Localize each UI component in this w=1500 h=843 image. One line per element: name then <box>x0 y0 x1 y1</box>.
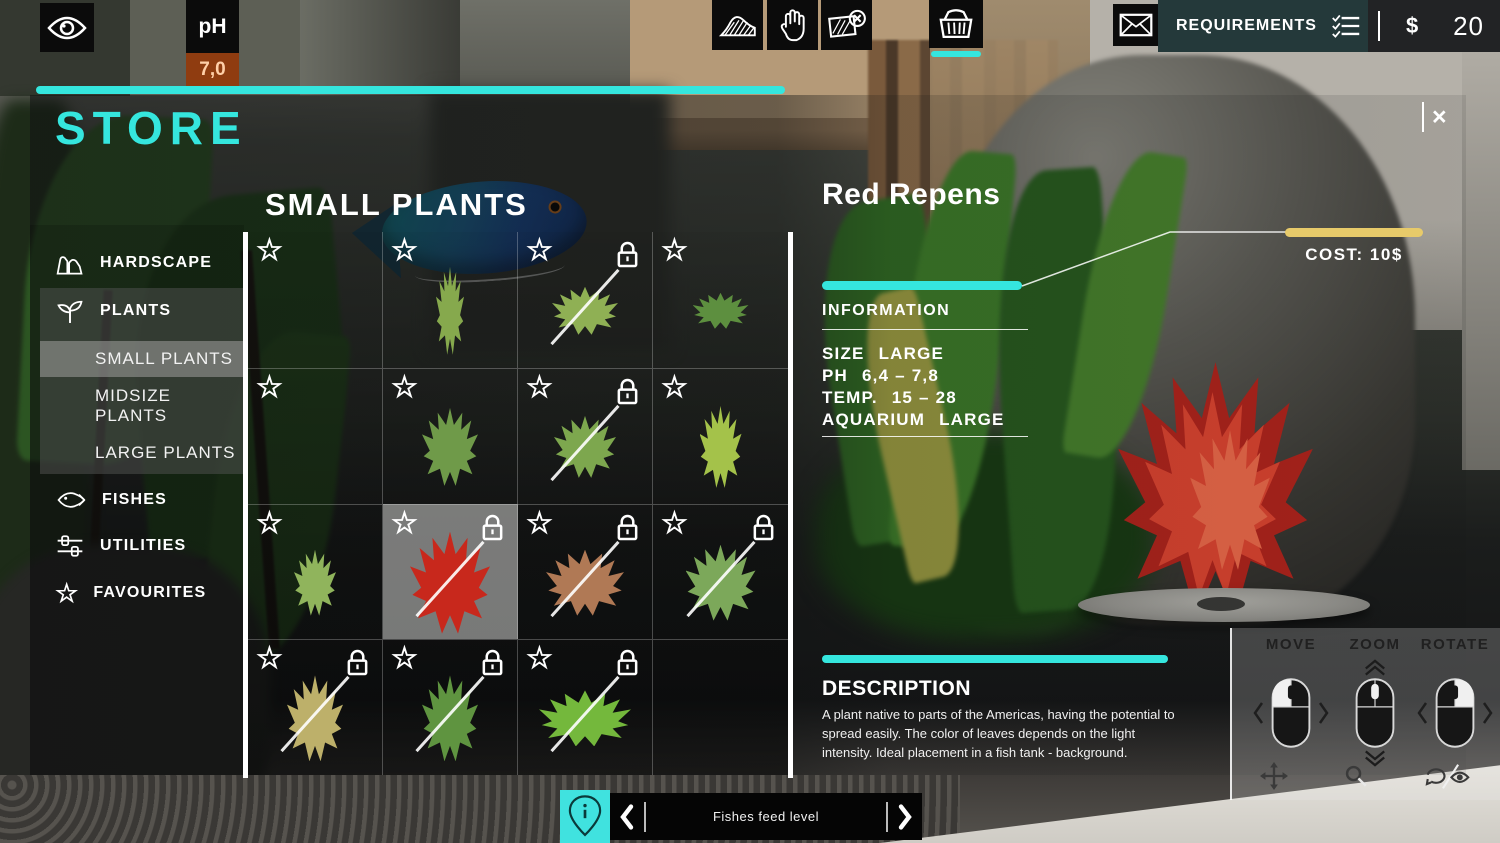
rotate-control: ROTATE <box>1412 636 1498 767</box>
info-label: SIZE <box>822 343 865 364</box>
plant-cell <box>653 639 788 775</box>
info-row: SIZELARGE <box>822 343 1005 364</box>
chevron-left-icon <box>1252 701 1264 725</box>
plant-cell[interactable]: ☆ <box>653 504 788 640</box>
item-accent-bar <box>822 281 1022 290</box>
info-value: LARGE <box>879 343 945 364</box>
close-icon: × <box>1432 105 1447 130</box>
plant-thumbnail <box>294 550 336 616</box>
sliders-icon <box>55 533 85 559</box>
plant-cell[interactable]: ☆ <box>248 368 383 504</box>
plant-cell[interactable]: ☆ <box>383 368 518 504</box>
divider <box>1422 102 1424 132</box>
currency-symbol: $ <box>1406 13 1418 39</box>
rotate-eye-icon <box>1424 763 1472 790</box>
info-row: TEMP.15 – 28 <box>822 387 1005 408</box>
plant-cell[interactable]: ☆ <box>383 639 518 775</box>
star-icon: ☆ <box>55 580 78 606</box>
terrain-tool-button[interactable] <box>712 0 763 50</box>
plant-grid: ☆☆☆☆☆☆☆☆☆☆☆☆☆☆☆ <box>248 232 788 775</box>
cost-bar <box>1285 228 1423 237</box>
sidebar-item-hardscape[interactable]: HARDSCAPE <box>55 247 212 279</box>
camera-controls-panel: MOVE ZOOM ROTATE <box>1230 628 1500 800</box>
plant-thumbnail <box>436 267 464 355</box>
info-label: AQUARIUM <box>822 409 925 430</box>
description-title: DESCRIPTION <box>822 677 971 701</box>
plant-thumbnail <box>686 545 756 621</box>
mail-icon <box>1119 12 1153 38</box>
move-control: MOVE <box>1248 636 1334 767</box>
category-title: SMALL PLANTS <box>265 187 528 223</box>
top-progress-bar <box>36 86 785 94</box>
status-label: Fishes feed level <box>646 809 886 824</box>
rotate-label: ROTATE <box>1421 636 1489 653</box>
divider <box>822 436 1028 437</box>
hand-tool-button[interactable] <box>767 0 818 50</box>
info-label: PH <box>822 365 848 386</box>
grid-scrollbar-right[interactable] <box>788 232 793 778</box>
chevron-left-icon <box>1416 701 1428 725</box>
visibility-button[interactable] <box>40 3 94 52</box>
move-label: MOVE <box>1266 636 1316 653</box>
favourite-star-icon[interactable]: ☆ <box>391 371 418 404</box>
info-row: AQUARIUMLARGE <box>822 409 1005 430</box>
favourite-star-icon[interactable]: ☆ <box>526 234 553 267</box>
mouse-right-button-icon <box>1432 675 1478 751</box>
lock-icon <box>480 513 505 542</box>
money-display: $ 20 <box>1368 0 1500 52</box>
checklist-icon <box>1331 13 1361 39</box>
lock-icon <box>480 648 505 677</box>
previous-status-button[interactable] <box>610 802 644 832</box>
info-row: PH6,4 – 7,8 <box>822 365 1005 386</box>
sidebar-item-large-plants[interactable]: LARGE PLANTS <box>40 435 244 471</box>
fish-icon <box>55 488 87 512</box>
cost-text: COST: 10$ <box>1282 245 1426 265</box>
chevron-right-icon <box>1482 701 1494 725</box>
sidebar-item-favourites[interactable]: ☆ FAVOURITES <box>55 577 206 609</box>
status-cycle-bar: Fishes feed level <box>610 793 922 840</box>
terrain-icon <box>719 11 757 39</box>
favourite-star-icon[interactable]: ☆ <box>661 371 688 404</box>
hand-icon <box>777 7 809 43</box>
info-label: TEMP. <box>822 387 878 408</box>
favourite-star-icon[interactable]: ☆ <box>256 234 283 267</box>
ph-value: 7,0 <box>186 53 239 87</box>
requirements-button[interactable]: REQUIREMENTS <box>1158 0 1368 52</box>
store-basket-button[interactable] <box>929 0 983 48</box>
favourite-star-icon[interactable]: ☆ <box>391 642 418 675</box>
store-title: STORE <box>55 101 248 155</box>
requirements-label: REQUIREMENTS <box>1176 17 1317 35</box>
divider <box>822 329 1028 330</box>
item-name: Red Repens <box>822 178 1000 212</box>
info-value: 6,4 – 7,8 <box>862 365 939 386</box>
information-rows: SIZELARGEPH6,4 – 7,8TEMP.15 – 28AQUARIUM… <box>822 343 1005 430</box>
favourite-star-icon[interactable]: ☆ <box>526 642 553 675</box>
lock-icon <box>751 513 776 542</box>
mail-button[interactable] <box>1113 4 1158 46</box>
mouse-left-button-icon <box>1268 675 1314 751</box>
info-value: 15 – 28 <box>892 387 957 408</box>
plant-cell[interactable]: ☆ <box>248 639 383 775</box>
sidebar-item-small-plants[interactable]: SMALL PLANTS <box>40 341 244 377</box>
lock-icon <box>615 377 640 406</box>
money-amount: 20 <box>1453 11 1484 42</box>
info-pin-icon <box>564 793 606 840</box>
ph-indicator: pH <box>186 0 239 53</box>
cost-connector-line <box>1020 228 1290 290</box>
plant-thumbnail <box>552 287 618 335</box>
favourite-star-icon[interactable]: ☆ <box>391 234 418 267</box>
sidebar-item-fishes[interactable]: FISHES <box>55 484 167 516</box>
favourite-star-icon[interactable]: ☆ <box>256 642 283 675</box>
plant-cell[interactable]: ☆ <box>653 232 788 368</box>
wall-strip <box>1462 50 1500 470</box>
plant-cell[interactable]: ☆ <box>383 232 518 368</box>
plant-thumbnail <box>693 293 749 329</box>
box-delete-icon <box>827 9 867 41</box>
magnifier-icon <box>1343 763 1369 789</box>
favourite-star-icon[interactable]: ☆ <box>661 234 688 267</box>
basket-icon <box>937 8 975 41</box>
sidebar-item-plants[interactable]: PLANTS <box>55 295 171 327</box>
info-pin-button[interactable] <box>560 790 610 843</box>
plant-icon <box>55 298 85 325</box>
plant-cell[interactable]: ☆ <box>518 639 653 775</box>
info-value: LARGE <box>939 409 1005 430</box>
plant-cell[interactable]: ☆ <box>383 504 518 640</box>
lock-icon <box>345 648 370 677</box>
favourite-star-icon[interactable]: ☆ <box>661 507 688 540</box>
lock-icon <box>615 513 640 542</box>
zoom-label: ZOOM <box>1350 636 1401 653</box>
zoom-control: ZOOM <box>1332 636 1418 767</box>
mouse-wheel-icon <box>1352 659 1398 767</box>
sidebar-item-utilities[interactable]: UTILITIES <box>55 530 186 562</box>
plant-cell[interactable]: ☆ <box>518 368 653 504</box>
active-tab-indicator <box>931 51 981 57</box>
lock-icon <box>615 240 640 269</box>
game-screen: pH 7,0 REQUIREMENTS $ 20 STORE <box>0 0 1500 843</box>
plant-cell[interactable]: ☆ <box>248 232 383 368</box>
plant-thumbnail <box>539 690 631 746</box>
chevron-right-icon <box>1318 701 1330 725</box>
divider <box>1378 11 1380 41</box>
ph-label: pH <box>199 15 227 39</box>
favourite-star-icon[interactable]: ☆ <box>256 507 283 540</box>
favourite-star-icon[interactable]: ☆ <box>526 371 553 404</box>
plant-cell[interactable]: ☆ <box>518 232 653 368</box>
plant-cell[interactable]: ☆ <box>653 368 788 504</box>
plant-thumbnail <box>422 408 478 486</box>
description-text: A plant native to parts of the Americas,… <box>822 706 1180 763</box>
plant-cell[interactable]: ☆ <box>518 504 653 640</box>
eye-icon <box>47 14 87 42</box>
favourite-star-icon[interactable]: ☆ <box>256 371 283 404</box>
remove-tool-button[interactable] <box>821 0 872 50</box>
move-cross-icon <box>1260 762 1288 790</box>
lock-icon <box>615 648 640 677</box>
plant-cell[interactable]: ☆ <box>248 504 383 640</box>
close-button[interactable]: × <box>1422 99 1462 135</box>
next-status-button[interactable] <box>888 802 922 832</box>
sidebar-item-midsize-plants[interactable]: MIDSIZE PLANTS <box>40 388 244 424</box>
favourite-star-icon[interactable]: ☆ <box>391 507 418 540</box>
favourite-star-icon[interactable]: ☆ <box>526 507 553 540</box>
plant-thumbnail <box>700 406 742 488</box>
rocks-icon <box>55 250 85 276</box>
description-accent-bar <box>822 655 1168 663</box>
information-title: INFORMATION <box>822 302 950 320</box>
